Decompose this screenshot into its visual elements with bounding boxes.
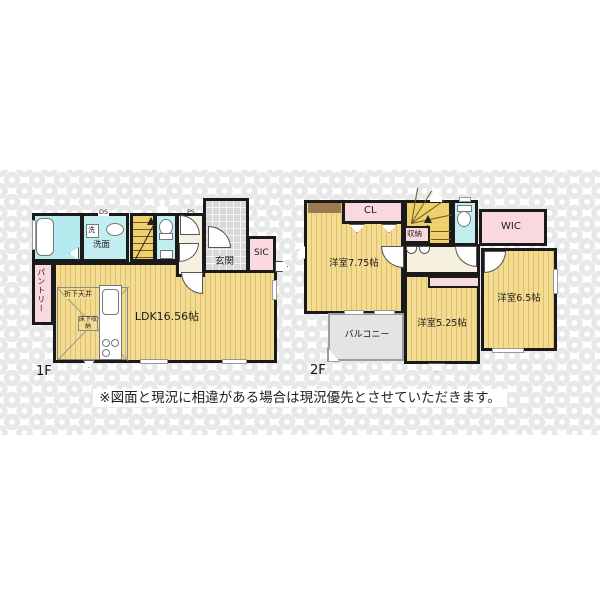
window-marker bbox=[374, 310, 395, 315]
floor-storage-label: 床下収納 bbox=[78, 316, 98, 331]
toilet-basin bbox=[160, 250, 173, 259]
floor1-label: 1F bbox=[36, 365, 52, 379]
vent-arrow-icon bbox=[157, 204, 168, 213]
closet-middle bbox=[428, 276, 480, 288]
disclaimer-note: ※図面と現況に相違がある場合は現況優先とさせていただきます。 bbox=[0, 386, 600, 406]
stove-burner-icon bbox=[102, 349, 110, 357]
wic-label: WIC bbox=[501, 221, 521, 232]
washroom-label: 洗面 bbox=[93, 241, 110, 250]
floor1-plan: パントリー 洗 洗面 DS PS 玄関 SIC bbox=[32, 198, 290, 383]
stair-tread bbox=[431, 239, 451, 240]
entry-arrow-icon bbox=[275, 261, 288, 272]
cl-label: CL bbox=[364, 205, 377, 216]
toilet-tank-icon bbox=[159, 233, 173, 240]
vent-arrow-icon bbox=[430, 193, 442, 202]
counter-strip bbox=[308, 203, 341, 213]
sink-basin-icon bbox=[106, 223, 124, 236]
east-room-label: 洋室6.5帖 bbox=[488, 294, 550, 304]
disclaimer-text: ※図面と現況に相違がある場合は現況優先とさせていただきます。 bbox=[93, 389, 506, 407]
bathtub bbox=[36, 218, 54, 256]
window-marker bbox=[344, 310, 364, 315]
stairs-1f bbox=[130, 213, 156, 262]
storage-label: 収納 bbox=[407, 230, 422, 238]
entrance-label: 玄関 bbox=[215, 257, 234, 267]
ds-label: DS bbox=[98, 209, 109, 216]
window-marker bbox=[272, 280, 277, 300]
window-marker bbox=[222, 359, 247, 364]
dropped-ceiling-label: 折下天井 bbox=[64, 291, 92, 299]
vent-marker-icon bbox=[428, 363, 445, 372]
toilet-bowl-icon bbox=[457, 211, 471, 227]
washer-label: 洗 bbox=[88, 227, 95, 235]
balcony-label: バルコニー bbox=[338, 331, 396, 341]
stair-tread bbox=[431, 231, 451, 232]
pantry-label: パントリー bbox=[36, 268, 45, 313]
window-marker bbox=[553, 269, 558, 294]
window-marker bbox=[492, 348, 524, 353]
vent-marker-icon bbox=[83, 360, 95, 368]
stove-burner-icon bbox=[111, 339, 119, 347]
middle-room-label: 洋室5.25帖 bbox=[409, 319, 475, 329]
floor2-label: 2F bbox=[310, 364, 326, 378]
floor2-plan: 洋室7.75帖 CL 収納 WIC bbox=[302, 195, 564, 380]
stove-burner-icon bbox=[102, 339, 110, 347]
ldk-label: LDK16.56帖 bbox=[107, 311, 227, 323]
floorplan-canvas: パントリー 洗 洗面 DS PS 玄関 SIC bbox=[0, 0, 600, 600]
window-marker bbox=[140, 359, 168, 364]
sic-label: SIC bbox=[254, 249, 269, 259]
west-room-label: 洋室7.75帖 bbox=[319, 259, 389, 269]
window-marker bbox=[459, 197, 471, 202]
window-marker bbox=[32, 220, 36, 250]
